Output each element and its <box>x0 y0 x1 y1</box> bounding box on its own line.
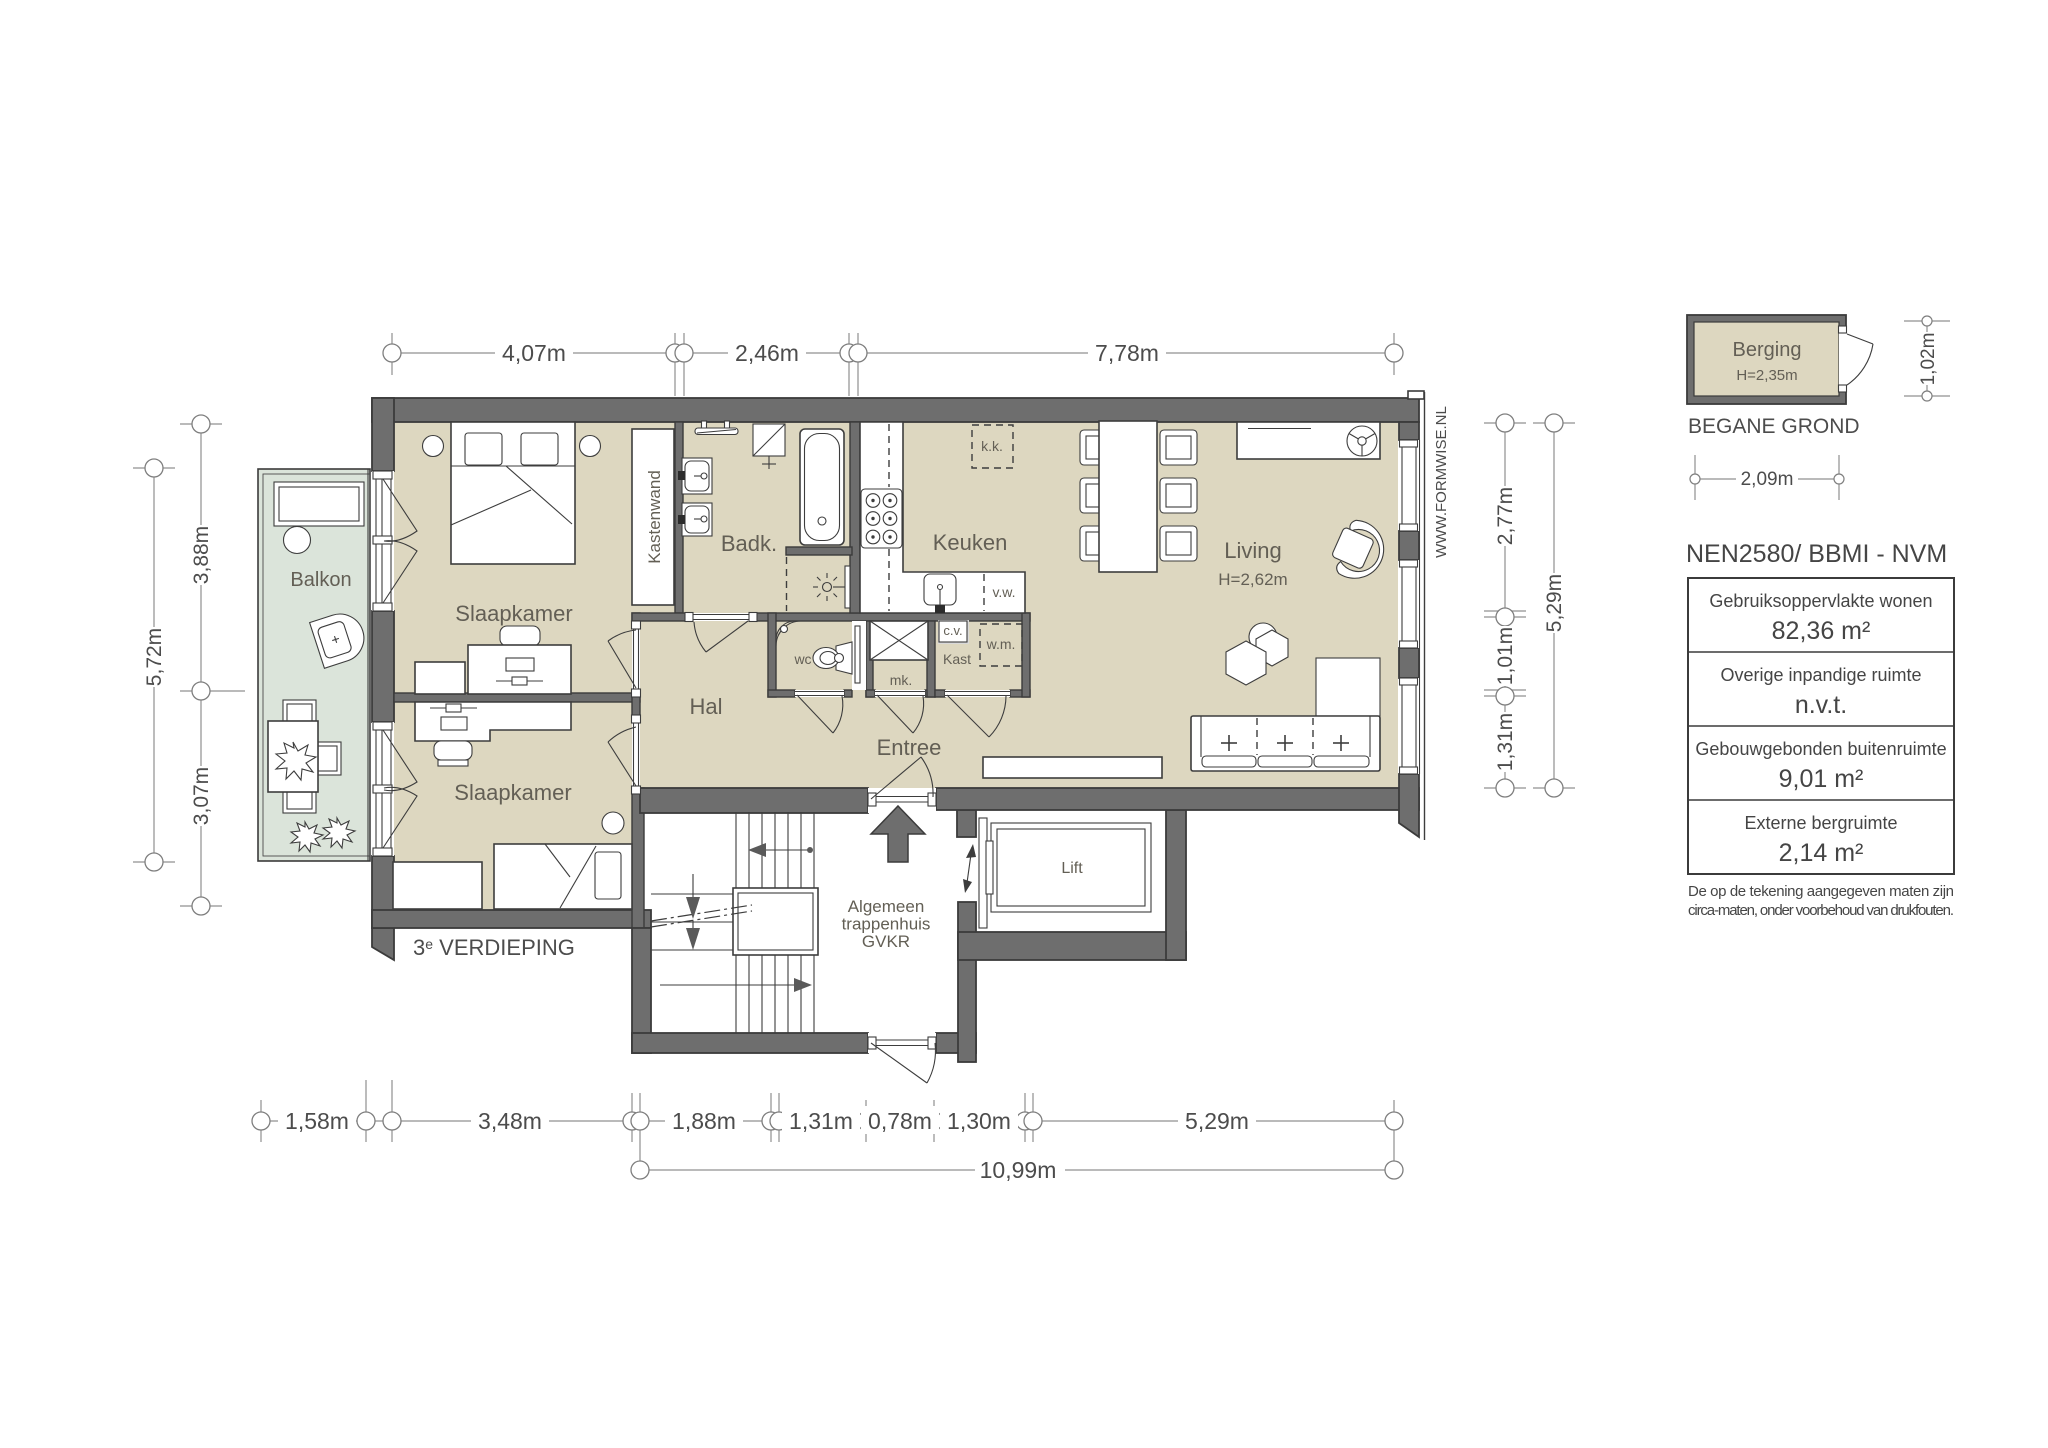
svg-text:trappenhuis: trappenhuis <box>842 915 931 934</box>
svg-text:Keuken: Keuken <box>933 530 1008 555</box>
svg-text:Living: Living <box>1224 538 1281 563</box>
svg-text:9,01 m²: 9,01 m² <box>1779 765 1864 793</box>
svg-text:0,78m: 0,78m <box>868 1108 932 1134</box>
svg-text:w.m.: w.m. <box>986 636 1016 652</box>
svg-text:1,88m: 1,88m <box>672 1108 736 1134</box>
svg-text:1,02m: 1,02m <box>1918 333 1939 386</box>
svg-text:1,01m: 1,01m <box>1494 627 1517 685</box>
svg-text:5,29m: 5,29m <box>1543 574 1566 632</box>
svg-text:3,48m: 3,48m <box>478 1108 542 1134</box>
svg-text:k.k.: k.k. <box>981 438 1003 454</box>
svg-text:BEGANE GROND: BEGANE GROND <box>1688 415 1860 438</box>
svg-text:2,46m: 2,46m <box>735 340 799 366</box>
svg-text:2,77m: 2,77m <box>1494 487 1517 545</box>
svg-text:Algemeen: Algemeen <box>848 897 925 916</box>
svg-text:82,36 m²: 82,36 m² <box>1772 617 1871 645</box>
svg-text:10,99m: 10,99m <box>980 1157 1057 1183</box>
svg-text:c.v.: c.v. <box>943 623 962 638</box>
svg-text:3e VERDIEPING: 3e VERDIEPING <box>413 935 575 960</box>
svg-text:v.w.: v.w. <box>992 584 1015 600</box>
svg-text:Slaapkamer: Slaapkamer <box>454 780 571 805</box>
svg-text:5,29m: 5,29m <box>1185 1108 1249 1134</box>
svg-text:1,30m: 1,30m <box>947 1108 1011 1134</box>
svg-text:mk.: mk. <box>890 672 913 688</box>
svg-text:7,78m: 7,78m <box>1095 340 1159 366</box>
svg-text:Kast: Kast <box>943 651 971 667</box>
svg-text:Gebouwgebonden buitenruimte: Gebouwgebonden buitenruimte <box>1695 739 1946 759</box>
svg-text:Berging: Berging <box>1733 339 1802 361</box>
svg-text:Gebruiksoppervlakte wonen: Gebruiksoppervlakte wonen <box>1709 591 1932 611</box>
svg-text:circa-maten, onder voorbehoud: circa-maten, onder voorbehoud van drukfo… <box>1688 902 1954 919</box>
svg-text:GVKR: GVKR <box>862 932 910 951</box>
svg-text:1,31m: 1,31m <box>1494 713 1517 771</box>
svg-text:4,07m: 4,07m <box>502 340 566 366</box>
svg-text:Hal: Hal <box>689 694 722 719</box>
svg-text:NEN2580/ BBMI - NVM: NEN2580/ BBMI - NVM <box>1686 540 1947 568</box>
svg-text:H=2,62m: H=2,62m <box>1218 570 1287 589</box>
svg-text:H=2,35m: H=2,35m <box>1736 367 1797 384</box>
svg-text:2,14 m²: 2,14 m² <box>1779 839 1864 867</box>
svg-text:3,07m: 3,07m <box>190 767 213 825</box>
svg-text:Kastenwand: Kastenwand <box>645 470 664 564</box>
svg-text:Externe bergruimte: Externe bergruimte <box>1744 813 1897 833</box>
svg-text:3,88m: 3,88m <box>190 526 213 584</box>
svg-text:De op de tekening aangegeven m: De op de tekening aangegeven maten zijn <box>1688 883 1954 900</box>
svg-text:WWW.FORMWISE.NL: WWW.FORMWISE.NL <box>1433 406 1450 558</box>
svg-text:5,72m: 5,72m <box>143 628 166 686</box>
svg-text:Balkon: Balkon <box>290 569 351 591</box>
svg-text:Badk.: Badk. <box>721 531 777 556</box>
svg-text:Slaapkamer: Slaapkamer <box>455 601 572 626</box>
svg-text:Entree: Entree <box>877 735 942 760</box>
svg-text:Overige inpandige ruimte: Overige inpandige ruimte <box>1720 665 1921 685</box>
svg-text:n.v.t.: n.v.t. <box>1795 691 1847 719</box>
svg-text:wc: wc <box>793 651 811 667</box>
svg-text:2,09m: 2,09m <box>1741 469 1794 490</box>
svg-text:1,31m: 1,31m <box>789 1108 853 1134</box>
svg-text:1,58m: 1,58m <box>285 1108 349 1134</box>
svg-text:Lift: Lift <box>1061 860 1083 877</box>
